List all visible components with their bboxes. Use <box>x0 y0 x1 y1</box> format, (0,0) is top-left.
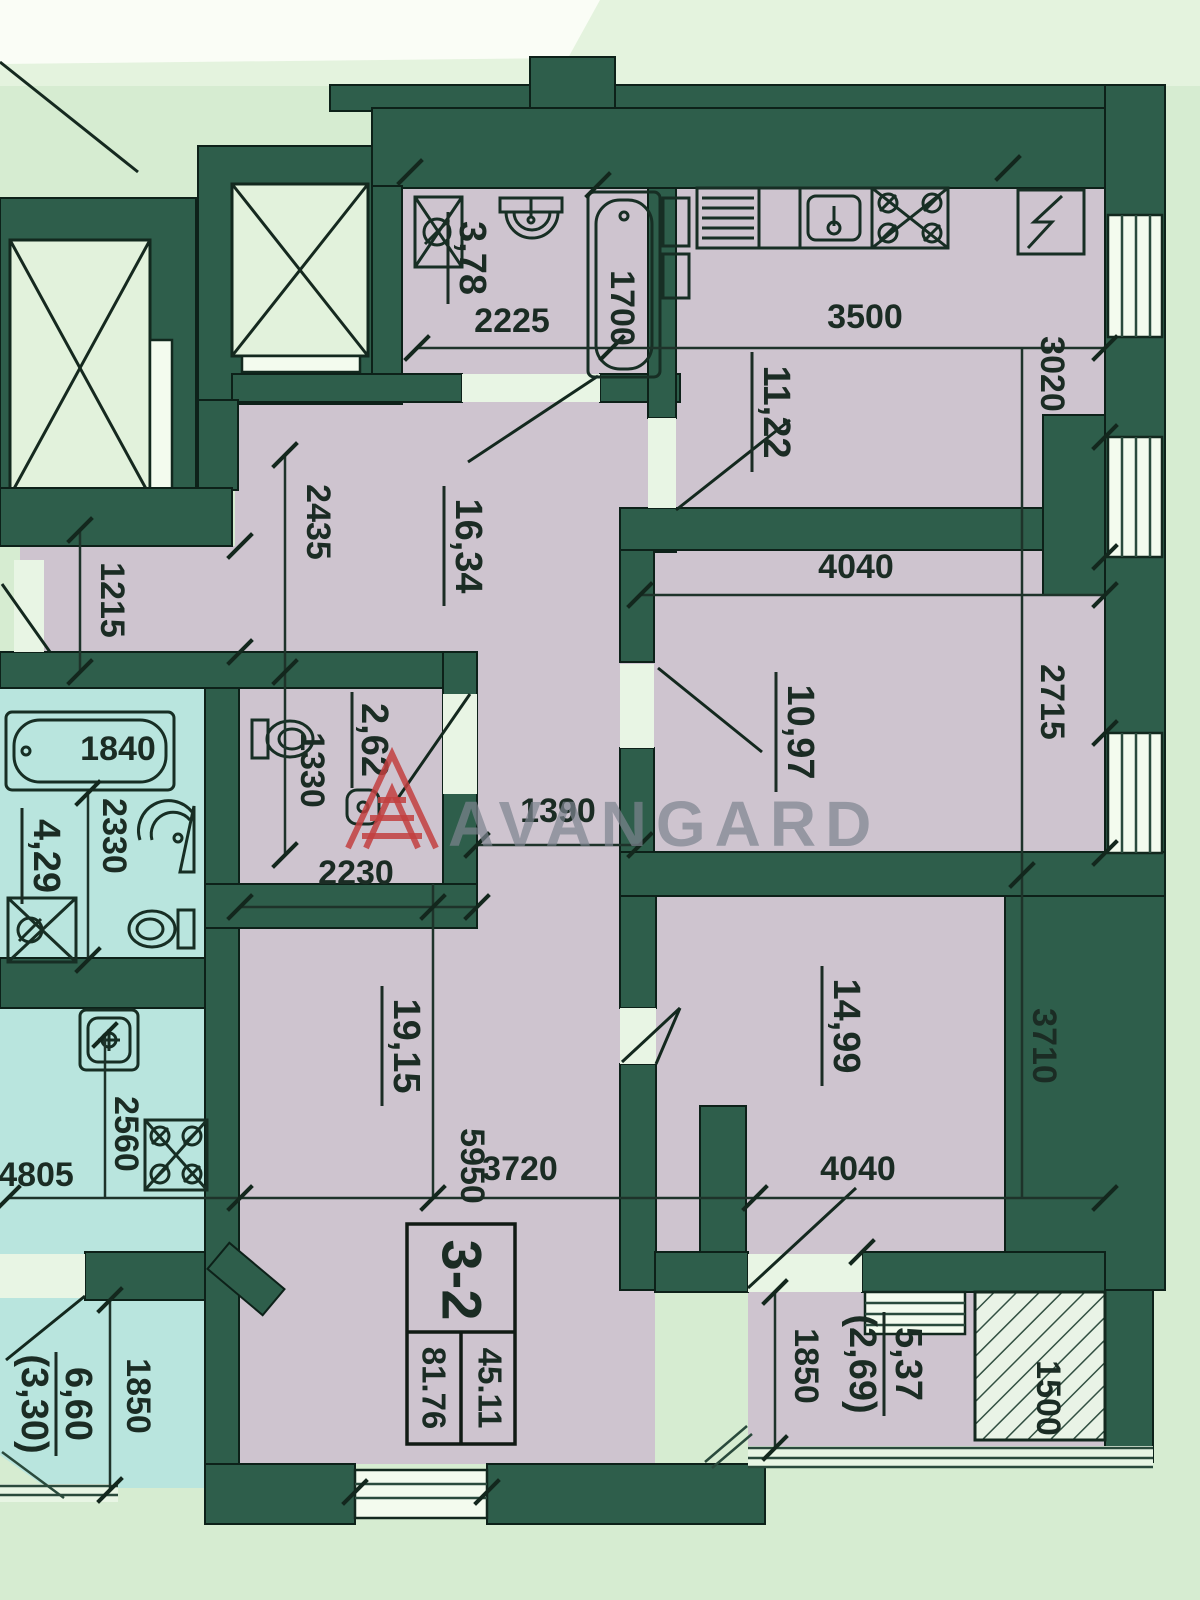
balcony-depth-dim: 1850 <box>787 1328 825 1404</box>
room-bottom-width-dim: 4040 <box>820 1150 896 1188</box>
entry-width-dim: 1215 <box>93 562 131 638</box>
bathroom-area-label: 3,78 <box>451 221 493 295</box>
stamp-total-area: 81.76 <box>416 1347 453 1430</box>
neighbor-tub-dim: 1840 <box>80 730 156 768</box>
neighbor-balcony-depth-dim: 1850 <box>119 1358 157 1434</box>
room-top-width-dim: 4040 <box>818 548 894 586</box>
room-bottom-depth-dim: 3710 <box>1025 1008 1063 1084</box>
neighbor-balcony-cold-label: (3,30) <box>13 1354 55 1453</box>
living-bottom-dim: 3720 <box>482 1150 558 1188</box>
floor-plan-page: 3,78 2225 1700 11,22 3500 3020 10,97 404… <box>0 0 1200 1600</box>
room-bottom-area-label: 14,99 <box>825 978 867 1073</box>
elevator-sill-2 <box>242 356 360 372</box>
brand-watermark-text: AVANGARD <box>448 788 880 860</box>
stamp-unit-number: 3-2 <box>431 1240 494 1321</box>
kitchen-width-dim: 3500 <box>827 298 903 336</box>
kitchen-area-label: 11,22 <box>755 366 797 459</box>
living-area-label: 19,15 <box>385 998 427 1093</box>
paper-edge <box>0 0 600 64</box>
hallway-area-label: 16,34 <box>447 498 489 593</box>
living-window <box>355 1470 487 1518</box>
balcony-area-cold-label: (2,69) <box>841 1314 883 1413</box>
neighbor-balcony-area-label: 6,60 <box>57 1367 99 1441</box>
stamp-living-area: 45.11 <box>472 1348 509 1429</box>
neighbor-kitchen-width-dim: 4805 <box>0 1156 74 1194</box>
room-top-depth-dim: 2715 <box>1033 664 1071 740</box>
balcony-width-dim: 1500 <box>1029 1360 1067 1436</box>
neighbor-bath-width-dim: 2330 <box>95 798 133 874</box>
wc-width-dim: 1330 <box>293 732 331 808</box>
hallway-width-dim: 2435 <box>299 484 337 560</box>
bathroom-width-dim: 2225 <box>474 302 550 340</box>
kitchen-depth-dim: 3020 <box>1033 336 1071 412</box>
elevator-door-1 <box>150 340 172 498</box>
living-top-dim: 2230 <box>318 854 394 892</box>
balcony-area-label: 5,37 <box>887 1327 929 1401</box>
neighbor-bath-area-label: 4,29 <box>25 819 67 893</box>
floor-plan-drawing: 3,78 2225 1700 11,22 3500 3020 10,97 404… <box>0 0 1200 1600</box>
tub-dim: 1700 <box>603 270 641 346</box>
neighbor-kitchen-depth-dim: 2560 <box>107 1096 145 1172</box>
room-top-area-label: 10,97 <box>779 684 821 779</box>
